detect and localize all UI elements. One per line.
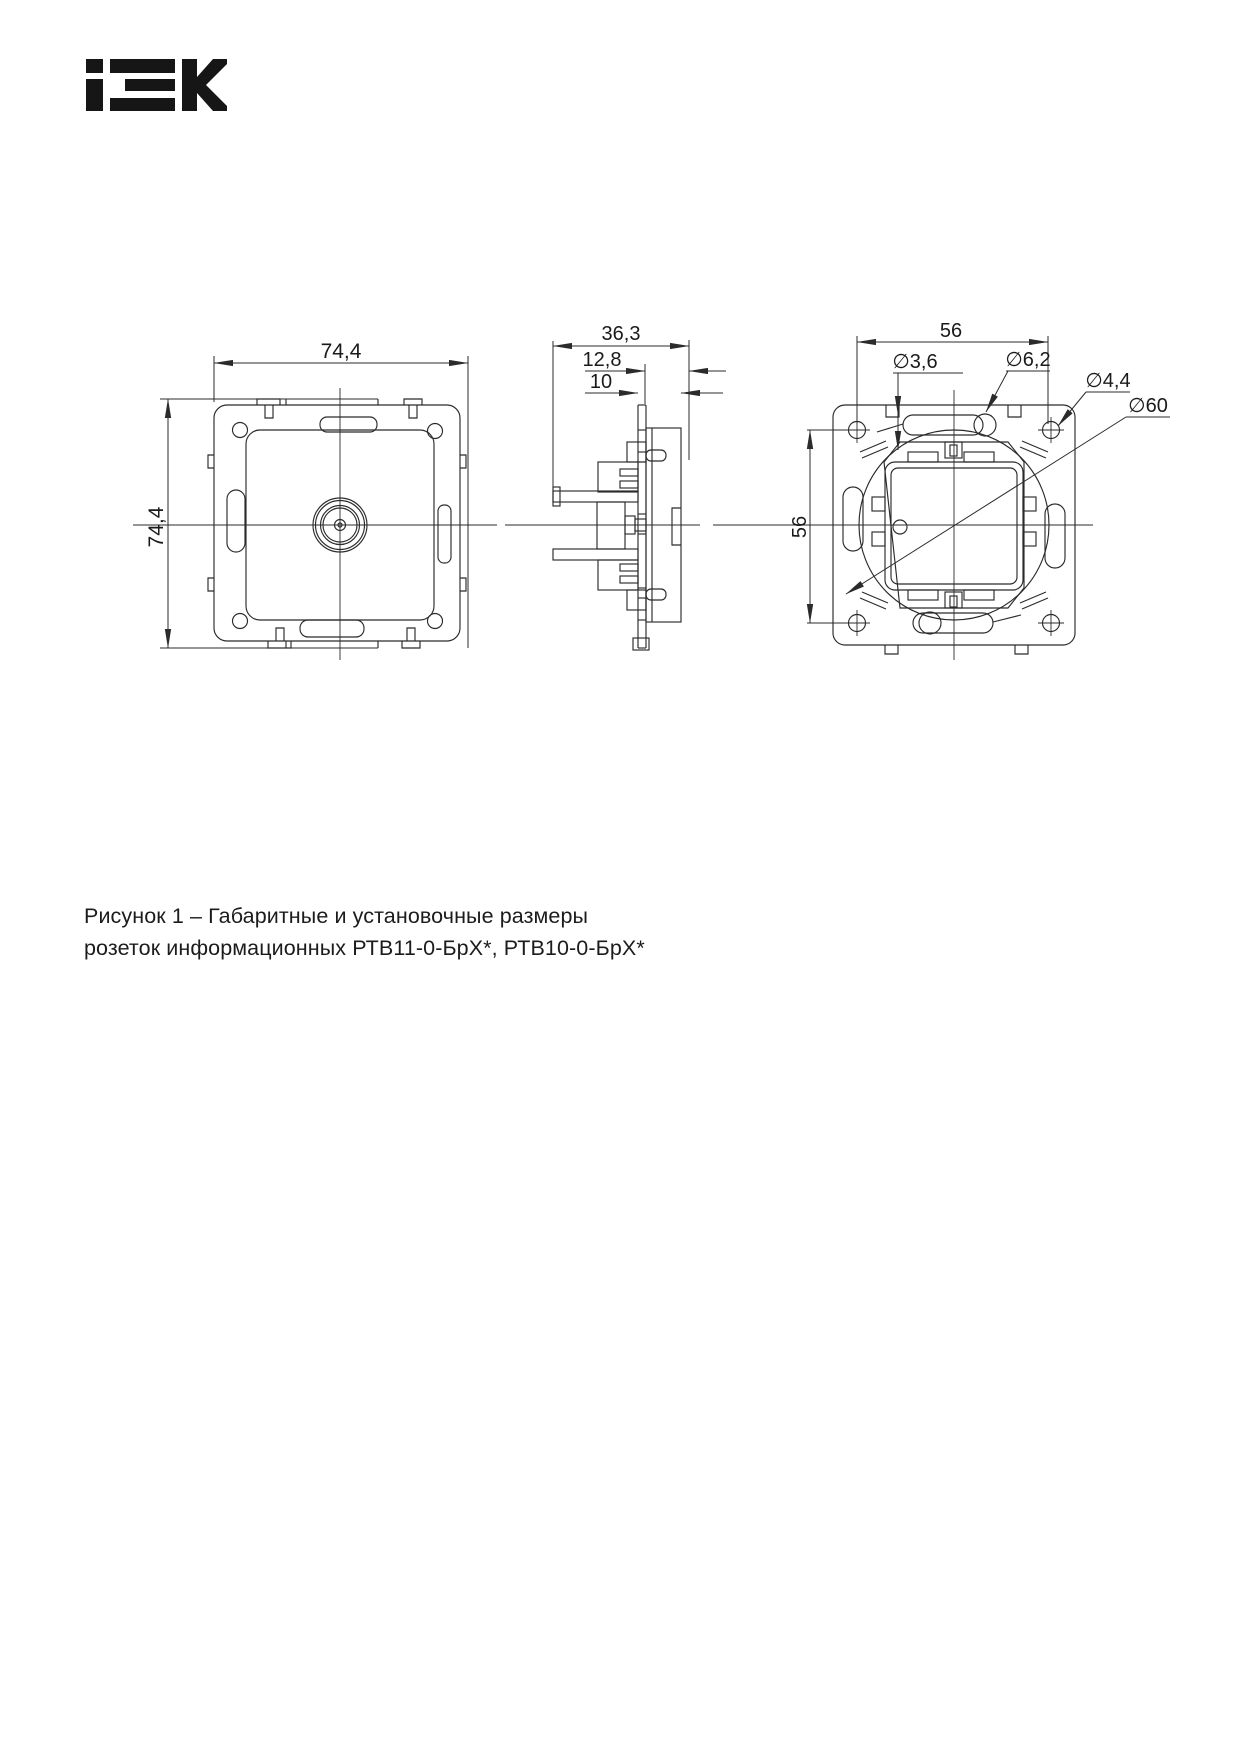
front-dim-height: 74,4 <box>145 399 378 648</box>
figure-caption-line1: Рисунок 1 – Габаритные и установочные ра… <box>84 901 744 933</box>
technical-drawing: 74,4 74,4 <box>0 0 1245 1747</box>
front-dim-height-label: 74,4 <box>145 506 168 547</box>
front-view: 74,4 74,4 <box>133 340 497 660</box>
front-dim-width-label: 74,4 <box>321 340 362 363</box>
rear-dim-width-label: 56 <box>940 320 962 342</box>
rear-dia-pilot-label: ∅3,6 <box>892 351 937 373</box>
rear-dia-claw-label: ∅6,2 <box>1005 349 1050 371</box>
side-dim-mid-label: 12,8 <box>583 349 622 371</box>
document-page: IEK <box>0 0 1245 1747</box>
figure-caption-line2: розеток информационных РТВ11-0-БрХ*, РТВ… <box>84 933 744 965</box>
side-dim-total-label: 36,3 <box>602 323 641 345</box>
figure-caption: Рисунок 1 – Габаритные и установочные ра… <box>84 901 744 964</box>
rear-dia-claw: ∅6,2 <box>986 349 1051 412</box>
side-view: 36,3 12,8 10 <box>505 323 726 650</box>
rear-dia-mounting: ∅60 <box>846 395 1170 594</box>
rear-dim-height-label: 56 <box>789 516 811 538</box>
rear-dia-screw-label: ∅4,4 <box>1085 370 1130 392</box>
front-dim-width: 74,4 <box>214 340 468 648</box>
rear-dim-height: 56 <box>789 430 848 623</box>
rear-view: 56 56 ∅3,6 ∅6,2 <box>713 320 1170 660</box>
rear-dia-screw: ∅4,4 <box>1058 370 1131 426</box>
side-dim-front: 10 <box>585 371 723 393</box>
rear-dia-mounting-label: ∅60 <box>1128 395 1168 417</box>
side-dim-front-label: 10 <box>590 371 612 393</box>
